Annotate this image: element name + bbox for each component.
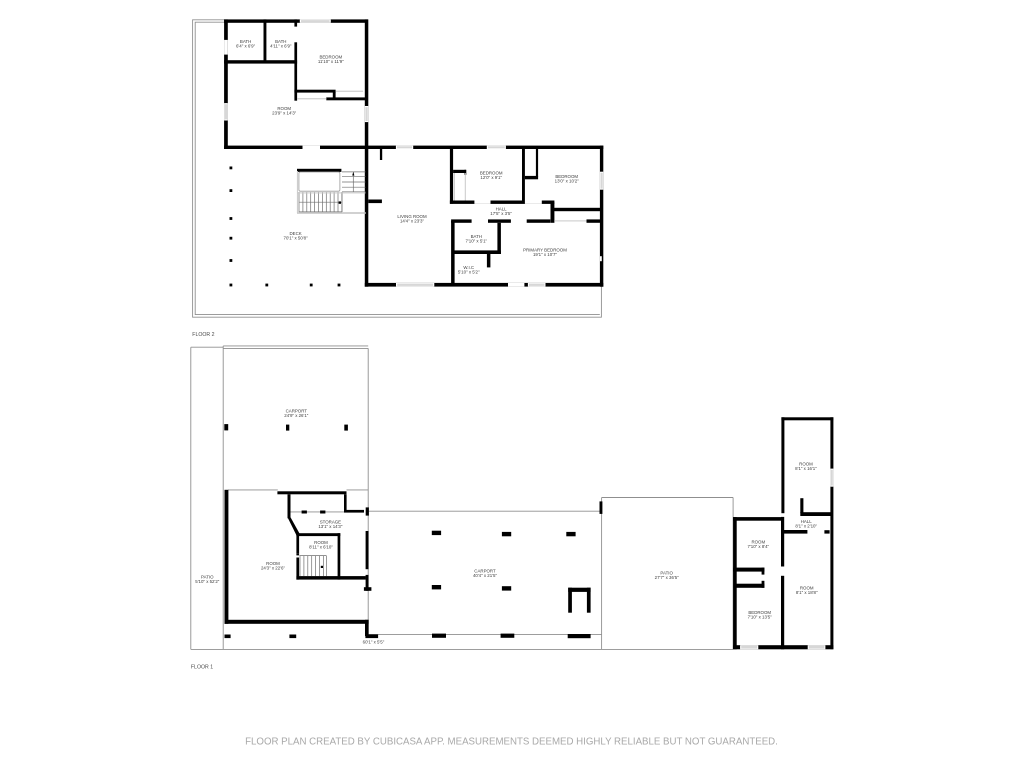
svg-text:LIVING ROOM14'4" x 23'3": LIVING ROOM14'4" x 23'3" [397, 214, 427, 224]
svg-text:60'1" x 5'5": 60'1" x 5'5" [363, 640, 385, 645]
svg-text:STORAGE13'1" x 14'3": STORAGE13'1" x 14'3" [318, 520, 343, 530]
svg-text:BEDROOM12'0" x 9'1": BEDROOM12'0" x 9'1" [480, 171, 503, 181]
svg-text:CARPORT24'9" x 26'1": CARPORT24'9" x 26'1" [284, 409, 309, 419]
svg-text:BEDROOM13'0" x 10'2": BEDROOM13'0" x 10'2" [555, 174, 580, 184]
svg-text:FLOOR 2: FLOOR 2 [192, 332, 214, 338]
svg-text:FLOOR 1: FLOOR 1 [191, 665, 213, 671]
svg-text:BEDROOM7'10" x 13'5": BEDROOM7'10" x 13'5" [748, 610, 773, 620]
svg-text:FLOOR PLAN CREATED BY CUBICASA: FLOOR PLAN CREATED BY CUBICASA APP. MEAS… [245, 736, 778, 747]
svg-text:CARPORT40'4" x 21'5": CARPORT40'4" x 21'5" [473, 569, 498, 579]
svg-text:BEDROOM11'10" x 11'9": BEDROOM11'10" x 11'9" [318, 55, 344, 65]
